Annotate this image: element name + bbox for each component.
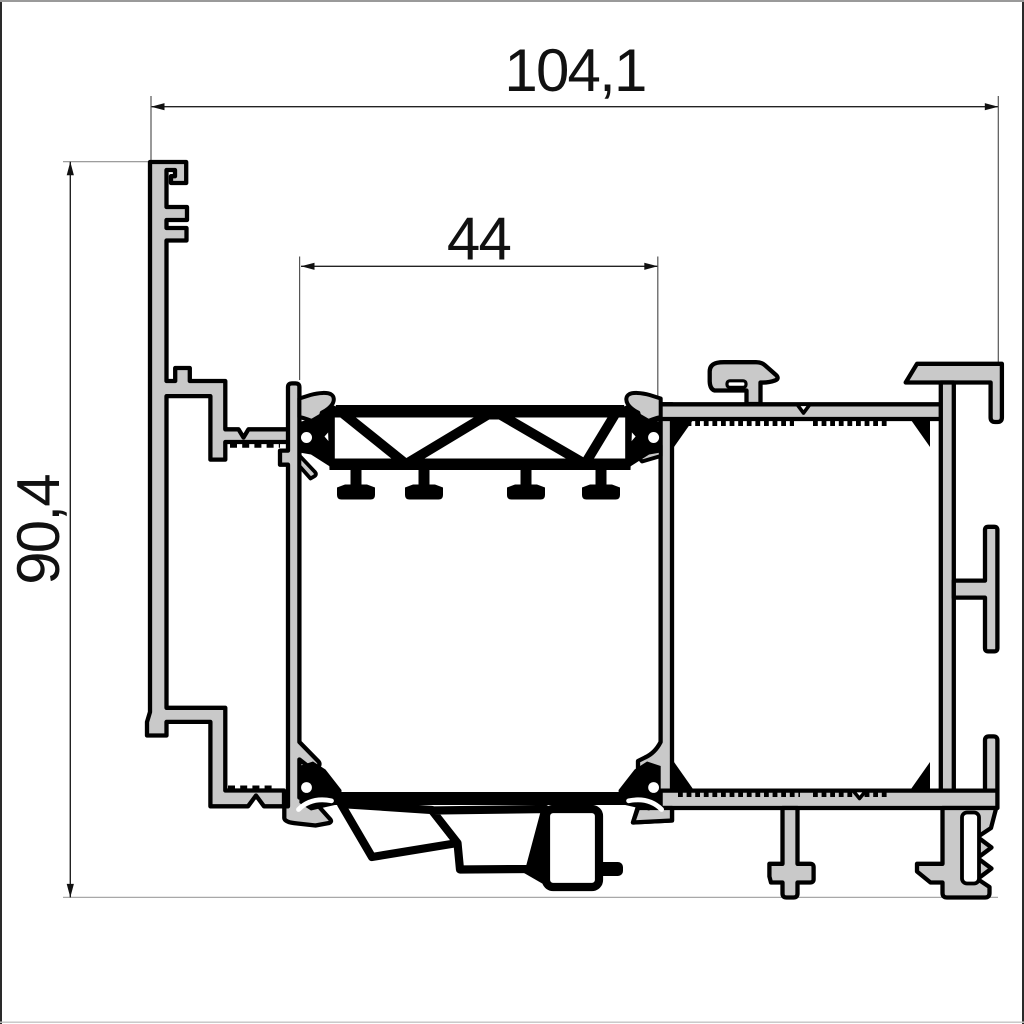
svg-text:104,1: 104,1 [504,37,645,104]
svg-text:44: 44 [447,206,511,273]
svg-text:90,4: 90,4 [5,475,72,585]
